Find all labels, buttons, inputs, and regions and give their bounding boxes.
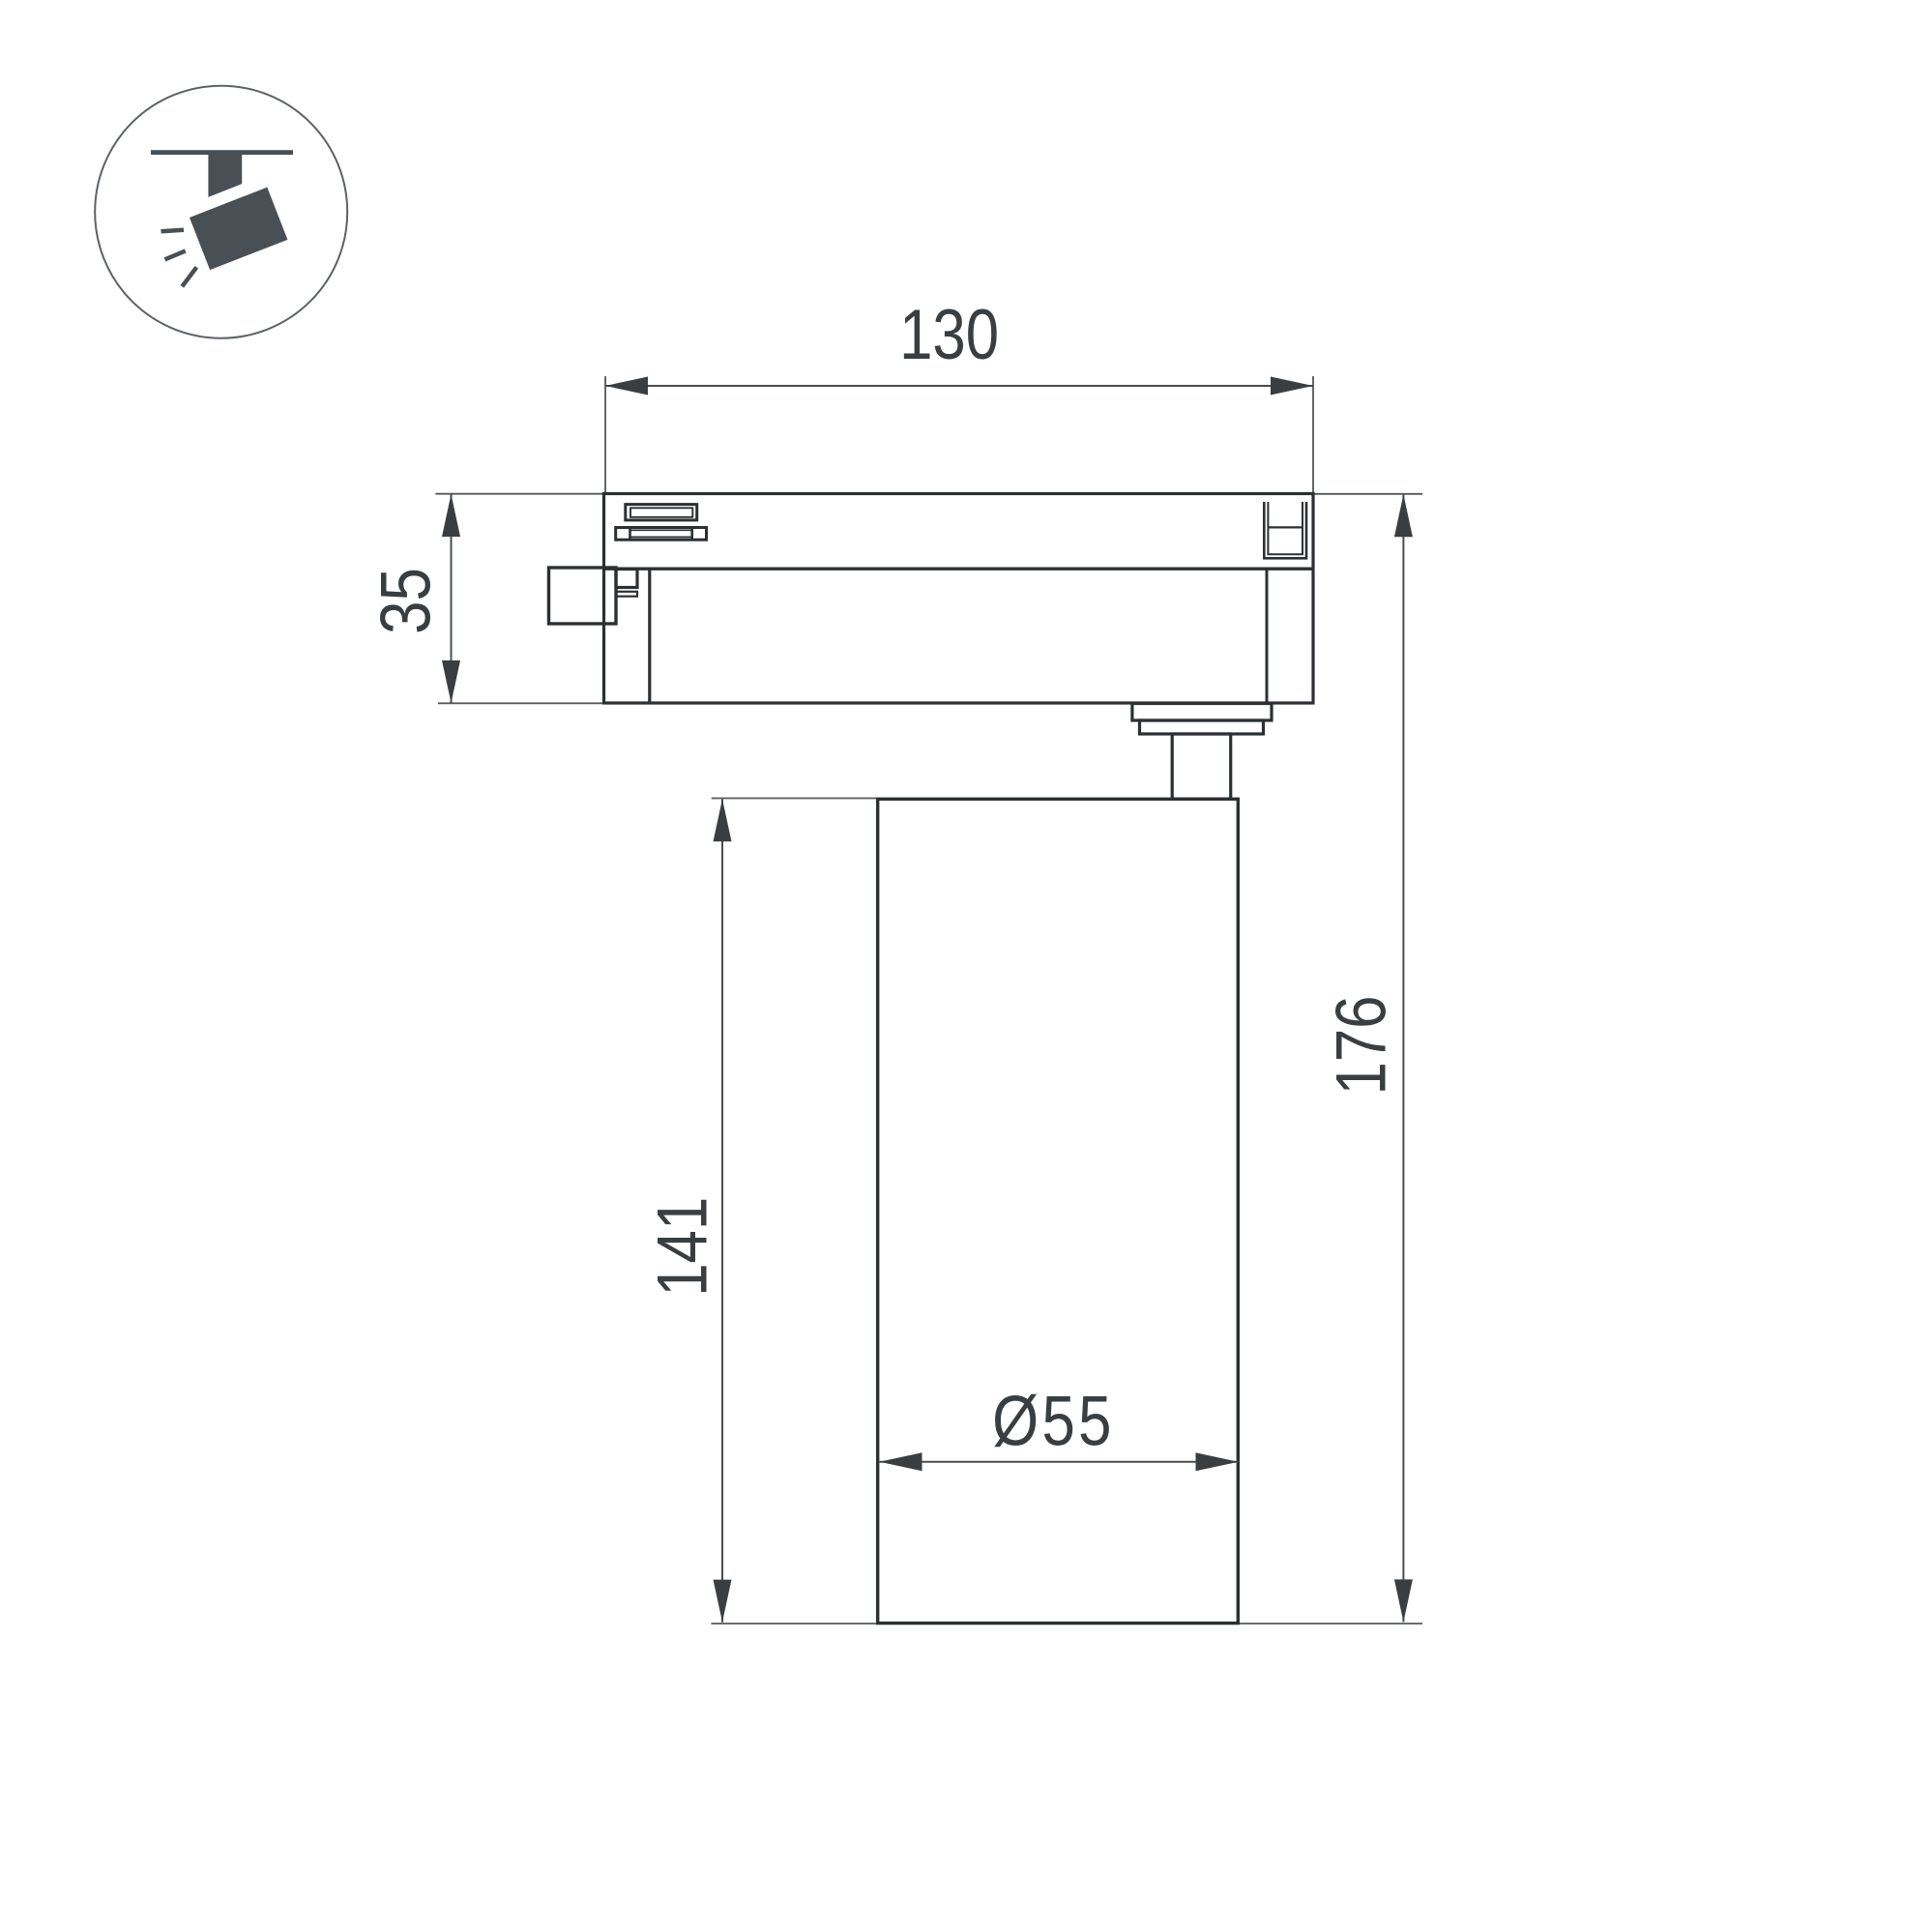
svg-text:130: 130: [899, 296, 999, 374]
svg-text:35: 35: [367, 568, 446, 634]
svg-text:141: 141: [644, 1197, 722, 1297]
svg-text:Ø55: Ø55: [992, 1382, 1115, 1460]
svg-text:176: 176: [1323, 996, 1401, 1096]
